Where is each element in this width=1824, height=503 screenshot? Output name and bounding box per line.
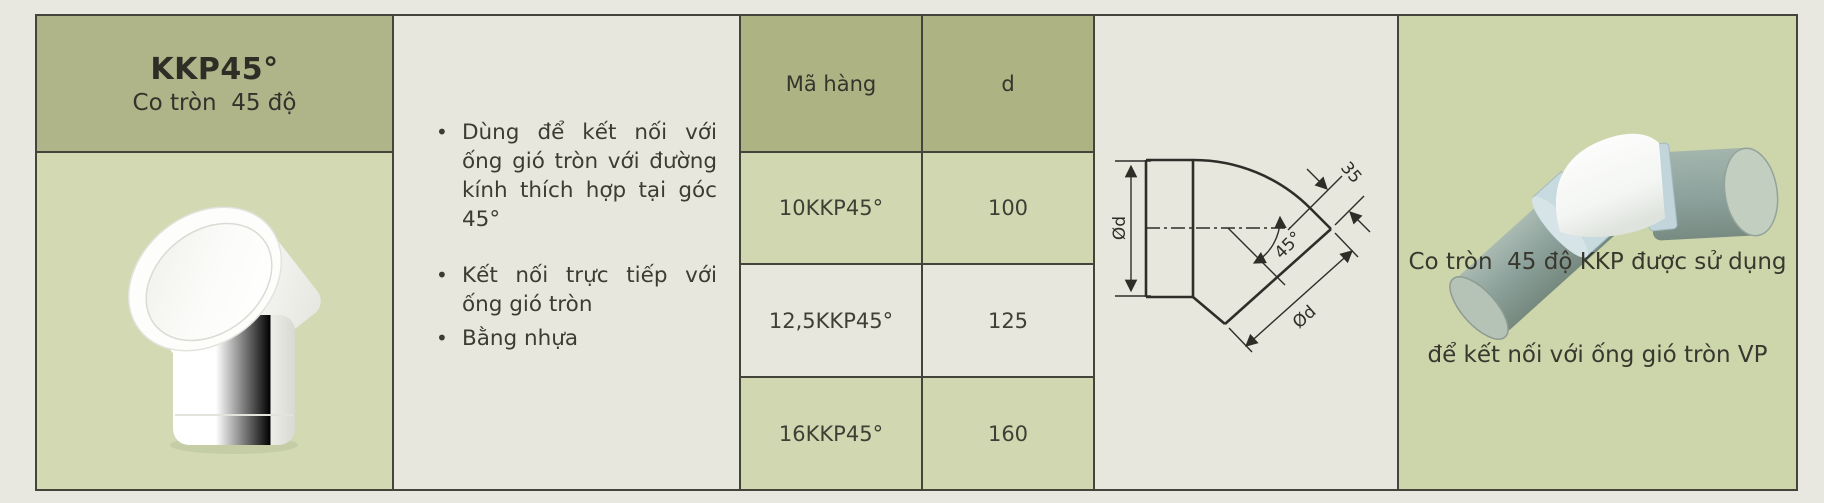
usage-caption-line2: để kết nối với ống gió tròn VP [1399, 340, 1796, 371]
label-outlet-diameter: Ød [1289, 302, 1320, 333]
product-name: Co tròn 45 độ [133, 90, 297, 116]
spec-cell-d: 160 [923, 378, 1093, 489]
usage-caption-line1: Co tròn 45 độ KKP được sử dụng [1399, 247, 1796, 278]
product-code: KKP45° [150, 52, 278, 87]
bullet-text: Kết nối trực tiếp với ống gió tròn [462, 263, 717, 317]
spec-cell-d: 100 [923, 153, 1093, 263]
spec-header-d: d [923, 16, 1093, 151]
bullet-item: Dùng để kết nối với ống gió tròn với đườ… [432, 118, 717, 234]
product-photo-cell [37, 153, 392, 489]
drawing-cell: Ød 35 45° Ød [1095, 16, 1397, 489]
technical-drawing: Ød 35 45° Ød [1095, 16, 1397, 489]
bullet-text: Bằng nhựa [462, 326, 578, 351]
label-inlet-diameter: Ød [1110, 216, 1130, 240]
bullet-list: Dùng để kết nối với ống gió tròn với đườ… [432, 118, 717, 353]
product-column: KKP45° Co tròn 45 độ [37, 16, 392, 489]
usage-cell: Co tròn 45 độ KKP được sử dụng để kết nố… [1399, 16, 1796, 489]
usage-caption: Co tròn 45 độ KKP được sử dụng để kết nố… [1399, 185, 1796, 433]
elbow-outline [1115, 160, 1370, 352]
spec-cell-code: 12,5KKP45° [741, 265, 921, 376]
spec-cell-d: 125 [923, 265, 1093, 376]
spec-header-code: Mã hàng [741, 16, 921, 151]
bullet-item: Kết nối trực tiếp với ống gió tròn [432, 261, 717, 319]
catalog-row: KKP45° Co tròn 45 độ [35, 14, 1798, 491]
spec-cell-code: 16KKP45° [741, 378, 921, 489]
spec-cell-code: 10KKP45° [741, 153, 921, 263]
bullet-item: Bằng nhựa [432, 324, 717, 353]
description-cell: Dùng để kết nối với ống gió tròn với đườ… [394, 16, 739, 489]
spec-table: Mã hàng d 10KKP45° 100 12,5KKP45° 125 16… [741, 16, 1093, 489]
product-photo-elbow [37, 153, 392, 489]
product-header-cell: KKP45° Co tròn 45 độ [37, 16, 392, 151]
dim-angle-arc [1254, 217, 1280, 263]
bullet-text: Dùng để kết nối với ống gió tròn với đườ… [462, 120, 717, 232]
label-angle: 45° [1271, 228, 1306, 263]
label-collar-length: 35 [1336, 158, 1365, 187]
